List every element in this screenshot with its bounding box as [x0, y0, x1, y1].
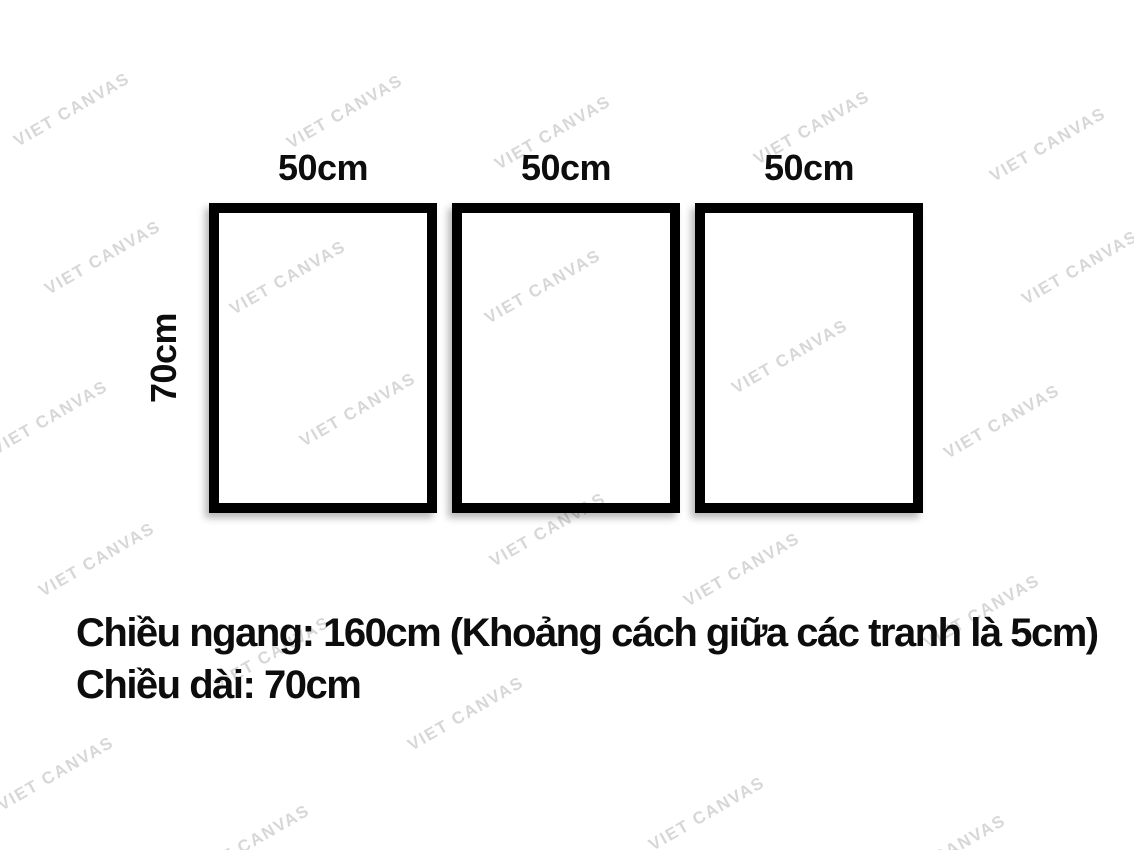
- dimension-caption: Chiều ngang: 160cm (Khoảng cách giữa các…: [76, 607, 1098, 711]
- watermark-text: VIET CANVAS: [0, 733, 118, 816]
- watermark-text: VIET CANVAS: [35, 519, 158, 602]
- picture-frame-2: [452, 203, 680, 513]
- frame-1-width-label: 50cm: [209, 147, 437, 189]
- watermark-text: VIET CANVAS: [41, 217, 164, 300]
- frame-3-width-label: 50cm: [695, 147, 923, 189]
- caption-line-horizontal: Chiều ngang: 160cm (Khoảng cách giữa các…: [76, 607, 1098, 659]
- watermark-text: VIET CANVAS: [886, 811, 1009, 850]
- watermark-text: VIET CANVAS: [190, 801, 313, 850]
- watermark-text: VIET CANVAS: [0, 377, 112, 460]
- picture-frame-1: [209, 203, 437, 513]
- watermark-text: VIET CANVAS: [680, 529, 803, 612]
- watermark-text: VIET CANVAS: [10, 69, 133, 152]
- picture-frame-3: [695, 203, 923, 513]
- frame-2-width-label: 50cm: [452, 147, 680, 189]
- canvas-set-dimension-diagram: VIET CANVAS VIET CANVAS VIET CANVAS VIET…: [0, 0, 1134, 850]
- watermark-text: VIET CANVAS: [986, 104, 1109, 187]
- watermark-text: VIET CANVAS: [645, 773, 768, 850]
- caption-line-vertical: Chiều dài: 70cm: [76, 659, 1098, 711]
- watermark-text: VIET CANVAS: [283, 71, 406, 154]
- frame-height-label: 70cm: [143, 313, 185, 403]
- watermark-text: VIET CANVAS: [1018, 227, 1134, 310]
- watermark-text: VIET CANVAS: [940, 381, 1063, 464]
